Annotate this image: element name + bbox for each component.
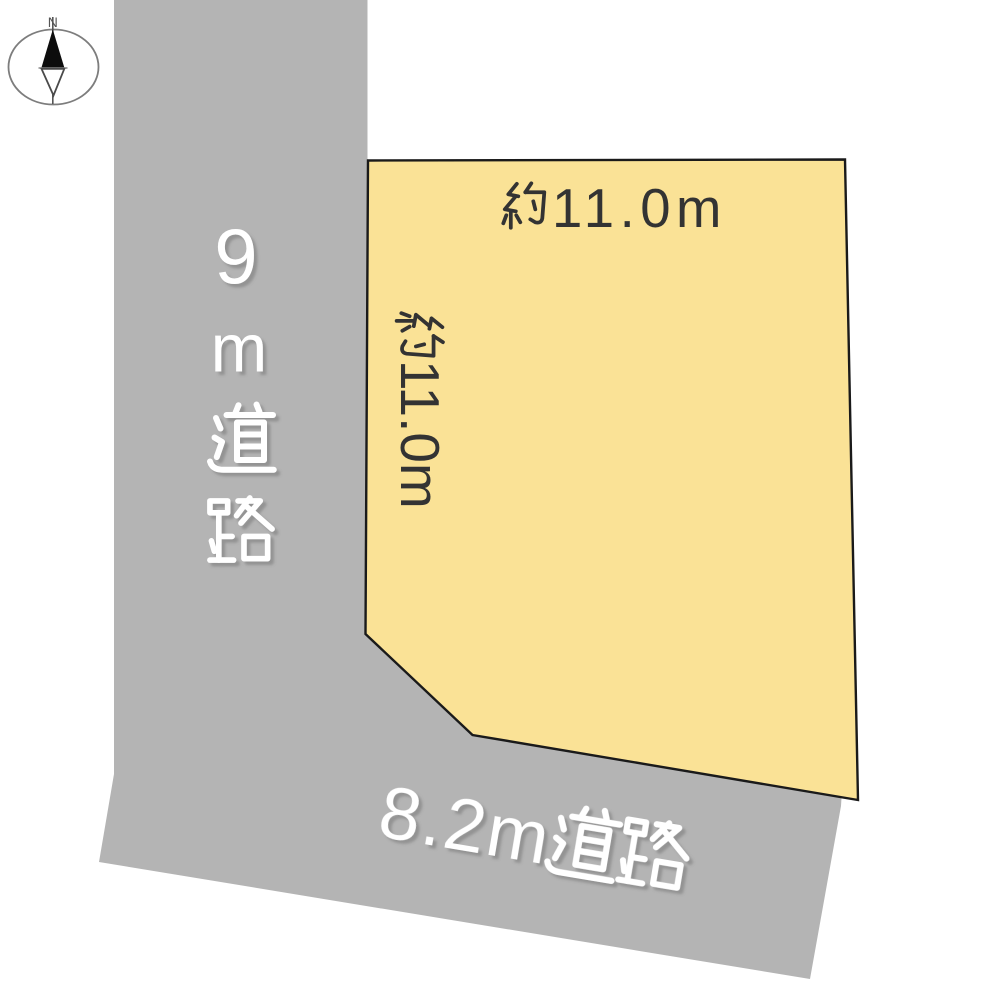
svg-text:11.0m: 11.0m xyxy=(552,178,727,239)
svg-text:9: 9 xyxy=(214,212,257,300)
svg-text:N: N xyxy=(48,14,58,30)
svg-text:m: m xyxy=(211,311,268,387)
svg-text:11.0m: 11.0m xyxy=(389,360,451,509)
